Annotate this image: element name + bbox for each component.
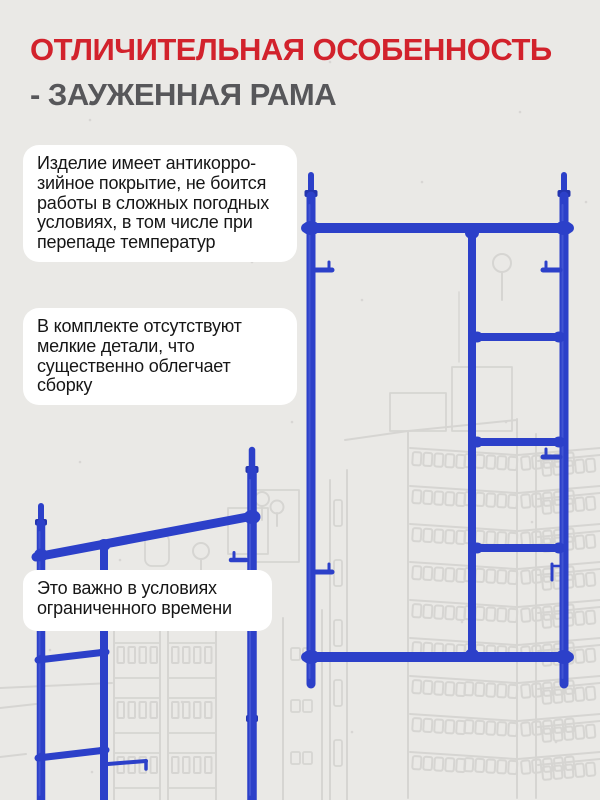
header: ОТЛИЧИТЕЛЬНАЯ ОСОБЕННОСТЬ - ЗАУЖЕННАЯ РА… <box>30 27 552 117</box>
feature-card-limited-time: Это важно в условиях ограниченного време… <box>23 570 272 631</box>
feature-card-limited-time-text: Это важно в условиях ограниченного време… <box>37 579 258 619</box>
feature-card-no-small-parts: В комплекте отсутствуют мелкие детали, ч… <box>23 308 297 405</box>
feature-card-coating-text: Изделие имеет антикорро- зийное покрытие… <box>37 154 283 253</box>
page-subtitle: - ЗАУЖЕННАЯ РАМА <box>30 72 552 117</box>
feature-card-coating: Изделие имеет антикорро- зийное покрытие… <box>23 145 297 262</box>
feature-card-no-small-parts-text: В комплекте отсутствуют мелкие детали, ч… <box>37 317 283 396</box>
infographic-canvas: ОТЛИЧИТЕЛЬНАЯ ОСОБЕННОСТЬ - ЗАУЖЕННАЯ РА… <box>0 0 600 800</box>
page-title: ОТЛИЧИТЕЛЬНАЯ ОСОБЕННОСТЬ <box>30 27 552 72</box>
